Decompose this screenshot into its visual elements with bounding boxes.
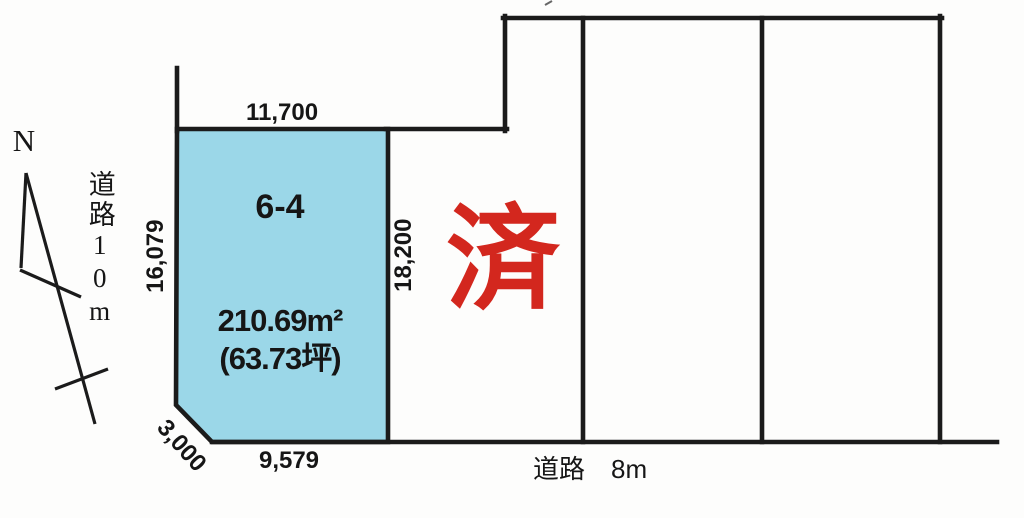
land-plot-diagram: N 道路10m 11,700 16,079 18,200 9,579 3,000…: [0, 0, 1024, 518]
plot-area-tsubo: (63.73坪): [152, 342, 408, 376]
dimension-left: 16,079: [143, 206, 169, 306]
scan-artifact-tick: [545, 1, 552, 5]
dimension-top: 11,700: [222, 100, 342, 126]
north-arrow-base: [20, 270, 81, 297]
road-label-west: 道路10m: [84, 170, 114, 340]
compass-north-label: N: [6, 124, 42, 158]
road-label-south: 道路 8m: [533, 455, 647, 484]
north-arrow-left-edge: [21, 173, 26, 268]
dimension-bottom: 9,579: [229, 448, 349, 474]
plot-area-m2: 210.69m²: [152, 304, 408, 338]
sold-stamp: 済: [437, 202, 569, 321]
main-plot-shape: [176, 129, 388, 442]
dimension-right: 18,200: [391, 205, 417, 305]
plot-number: 6-4: [180, 189, 380, 226]
